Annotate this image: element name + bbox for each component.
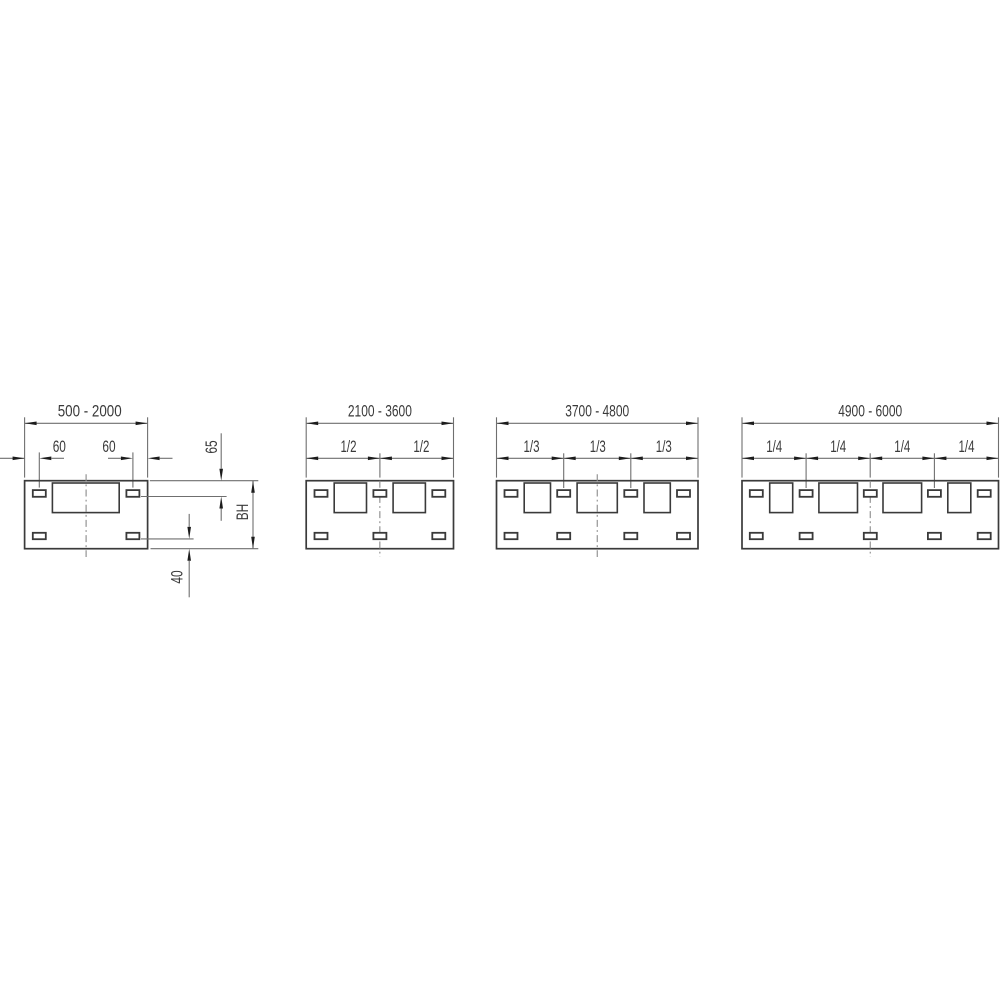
svg-text:1/3: 1/3	[524, 438, 540, 456]
svg-text:4900 - 6000: 4900 - 6000	[838, 403, 902, 421]
svg-text:40: 40	[169, 570, 187, 583]
svg-text:1/3: 1/3	[656, 438, 672, 456]
svg-text:1/4: 1/4	[766, 438, 782, 456]
svg-text:1/3: 1/3	[590, 438, 606, 456]
svg-text:BH: BH	[234, 504, 252, 521]
svg-text:3700 - 4800: 3700 - 4800	[565, 403, 629, 421]
svg-text:1/2: 1/2	[413, 438, 429, 456]
svg-text:1/4: 1/4	[894, 438, 910, 456]
svg-text:1/2: 1/2	[341, 438, 357, 456]
svg-text:1/4: 1/4	[959, 438, 975, 456]
svg-text:500 - 2000: 500 - 2000	[58, 403, 122, 421]
svg-text:1/4: 1/4	[830, 438, 846, 456]
svg-text:65: 65	[203, 440, 221, 453]
svg-text:60: 60	[102, 438, 115, 456]
svg-text:2100 - 3600: 2100 - 3600	[348, 403, 412, 421]
svg-text:60: 60	[53, 438, 66, 456]
